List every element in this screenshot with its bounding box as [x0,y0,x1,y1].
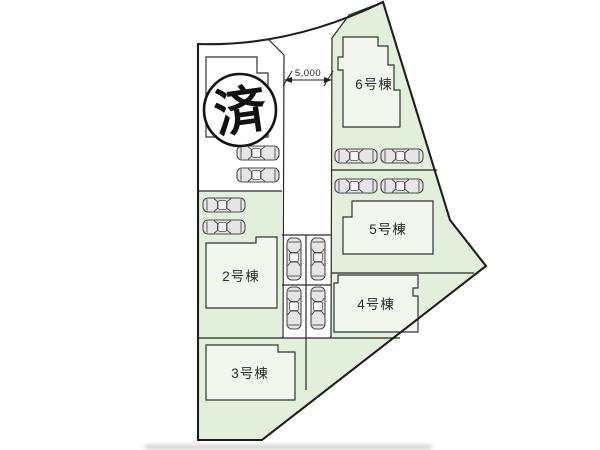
building-6-label: 6号棟 [355,77,393,92]
car-icon [311,238,325,280]
car-icon [381,179,423,193]
building-5-label: 5号棟 [369,222,407,237]
car-icon [203,198,245,212]
car-icon [335,149,377,163]
car-icon [237,146,279,160]
cropped-scan-artifact [145,445,432,449]
car-icon [287,238,301,280]
building-2-label: 2号棟 [222,269,260,284]
car-icon [237,168,279,182]
sold-badge-text: 済 [210,78,271,146]
road-dimension-label: 5,000 [295,68,321,79]
site-plan-drawing: 2号棟 3号棟 4号棟 5号棟 6号棟 済 [0,0,600,450]
car-icon [203,220,245,234]
car-icon [287,287,301,329]
building-4-label: 4号棟 [357,297,395,312]
car-icon [311,287,325,329]
site-plan-canvas: 2号棟 3号棟 4号棟 5号棟 6号棟 済 [0,0,600,450]
car-icon [335,179,377,193]
car-icon [381,149,423,163]
building-3-label: 3号棟 [231,366,269,381]
sold-badge: 済 [204,74,276,146]
